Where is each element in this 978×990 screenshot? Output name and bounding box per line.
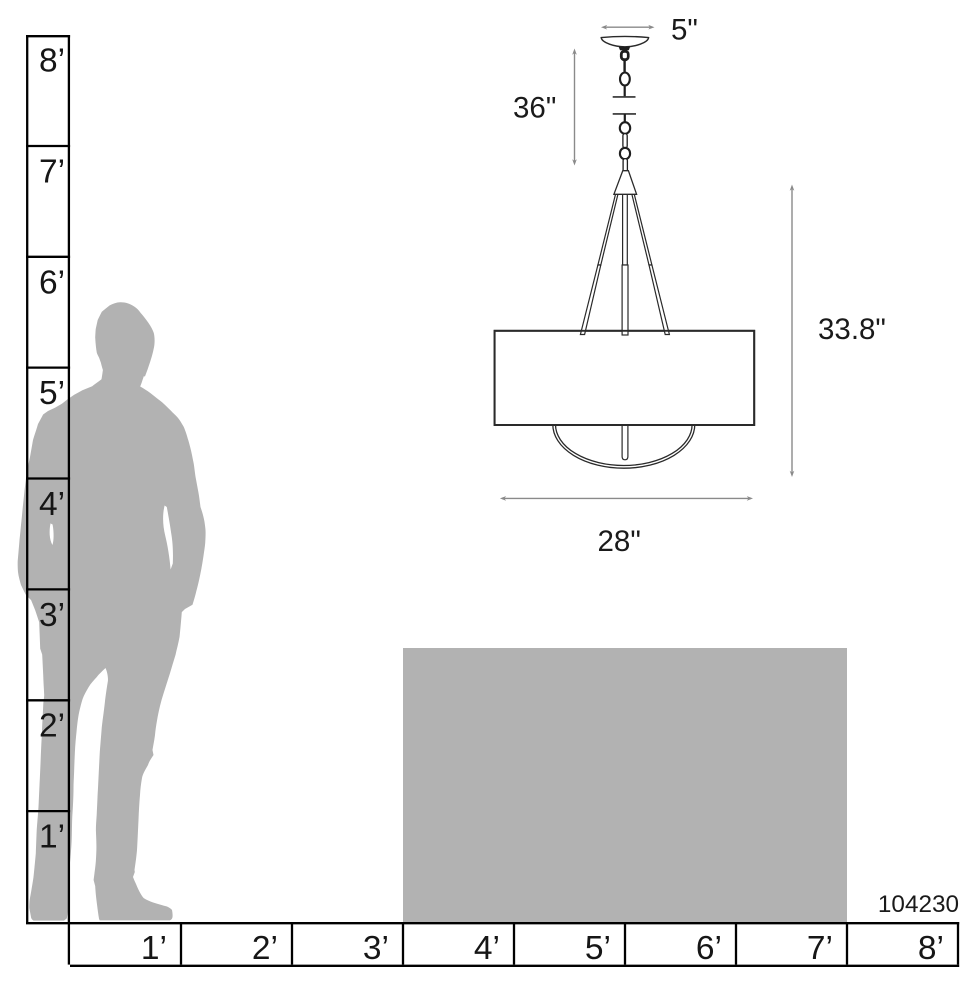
svg-text:2’: 2’ [39, 708, 65, 745]
svg-text:5’: 5’ [585, 930, 611, 967]
svg-text:7’: 7’ [807, 930, 833, 967]
svg-text:28": 28" [598, 525, 641, 558]
svg-text:4’: 4’ [474, 930, 500, 967]
svg-text:3’: 3’ [39, 597, 65, 634]
svg-text:33.8": 33.8" [818, 313, 886, 346]
svg-text:3’: 3’ [363, 930, 389, 967]
svg-text:8’: 8’ [918, 930, 944, 967]
svg-text:7’: 7’ [39, 153, 65, 190]
svg-text:6’: 6’ [696, 930, 722, 967]
svg-text:1’: 1’ [39, 819, 65, 856]
svg-text:2’: 2’ [252, 930, 278, 967]
svg-text:1’: 1’ [141, 930, 167, 967]
svg-text:5": 5" [671, 14, 698, 47]
svg-text:104230: 104230 [878, 891, 959, 918]
svg-text:4’: 4’ [39, 486, 65, 523]
svg-text:36": 36" [513, 92, 556, 125]
svg-text:8’: 8’ [39, 43, 65, 80]
svg-text:5’: 5’ [39, 375, 65, 412]
svg-text:6’: 6’ [39, 264, 65, 301]
